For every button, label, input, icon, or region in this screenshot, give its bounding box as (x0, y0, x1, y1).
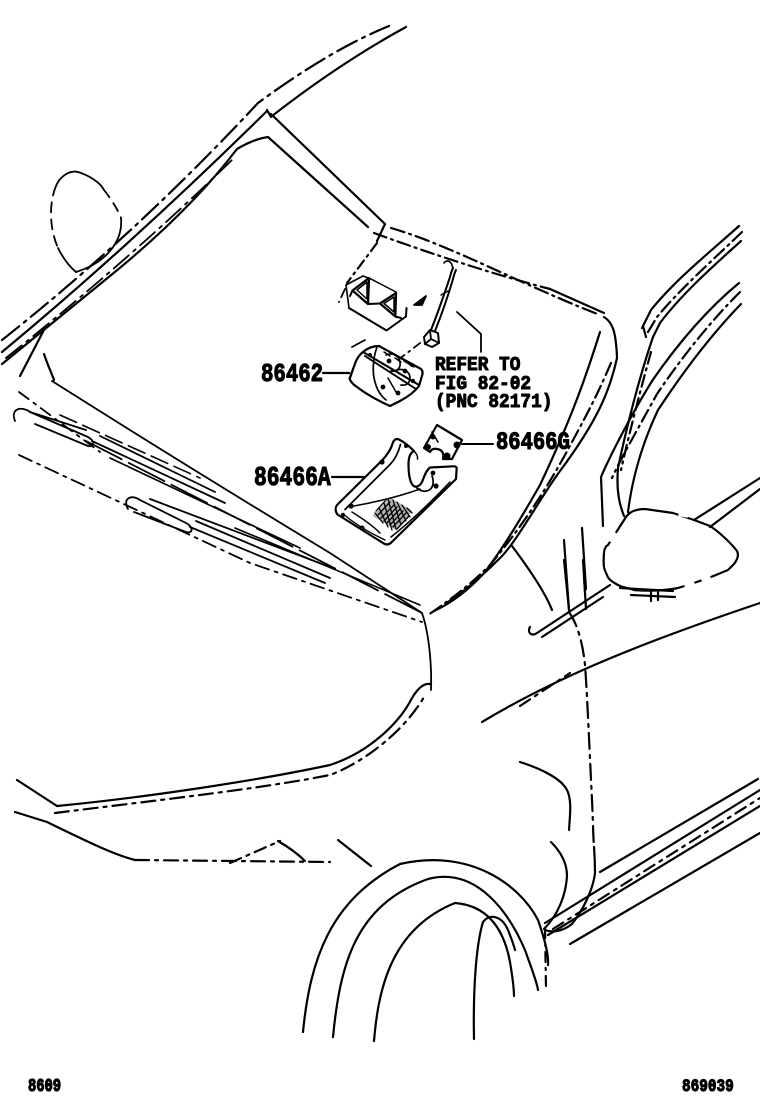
svg-text:(PNC 82171): (PNC 82171) (435, 390, 552, 413)
svg-text:86466G: 86466G (496, 428, 570, 457)
svg-text:8609: 8609 (28, 1075, 61, 1097)
svg-text:869039: 869039 (682, 1076, 734, 1097)
svg-text:86462: 86462 (261, 360, 323, 389)
svg-text:86466A: 86466A (254, 464, 331, 494)
